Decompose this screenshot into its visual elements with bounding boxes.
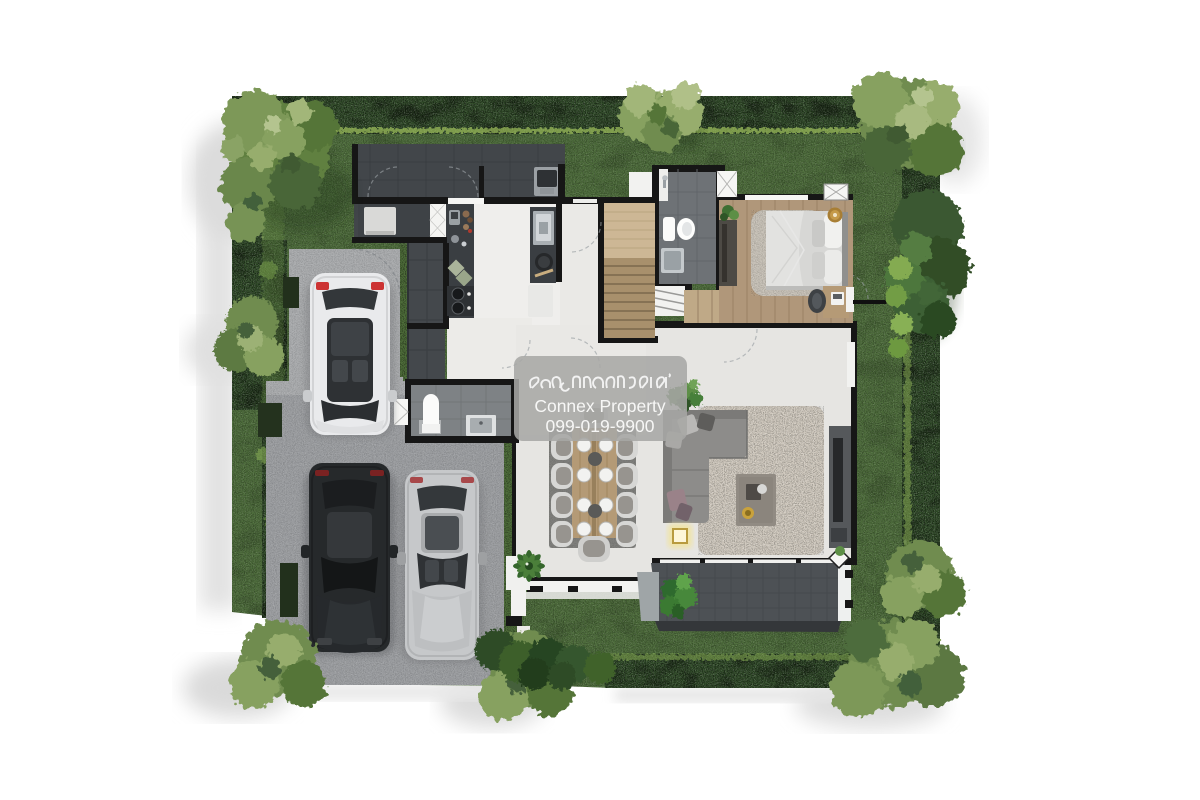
svg-text:099-019-9900: 099-019-9900 <box>546 416 655 436</box>
svg-text:Connex Property: Connex Property <box>534 396 666 416</box>
